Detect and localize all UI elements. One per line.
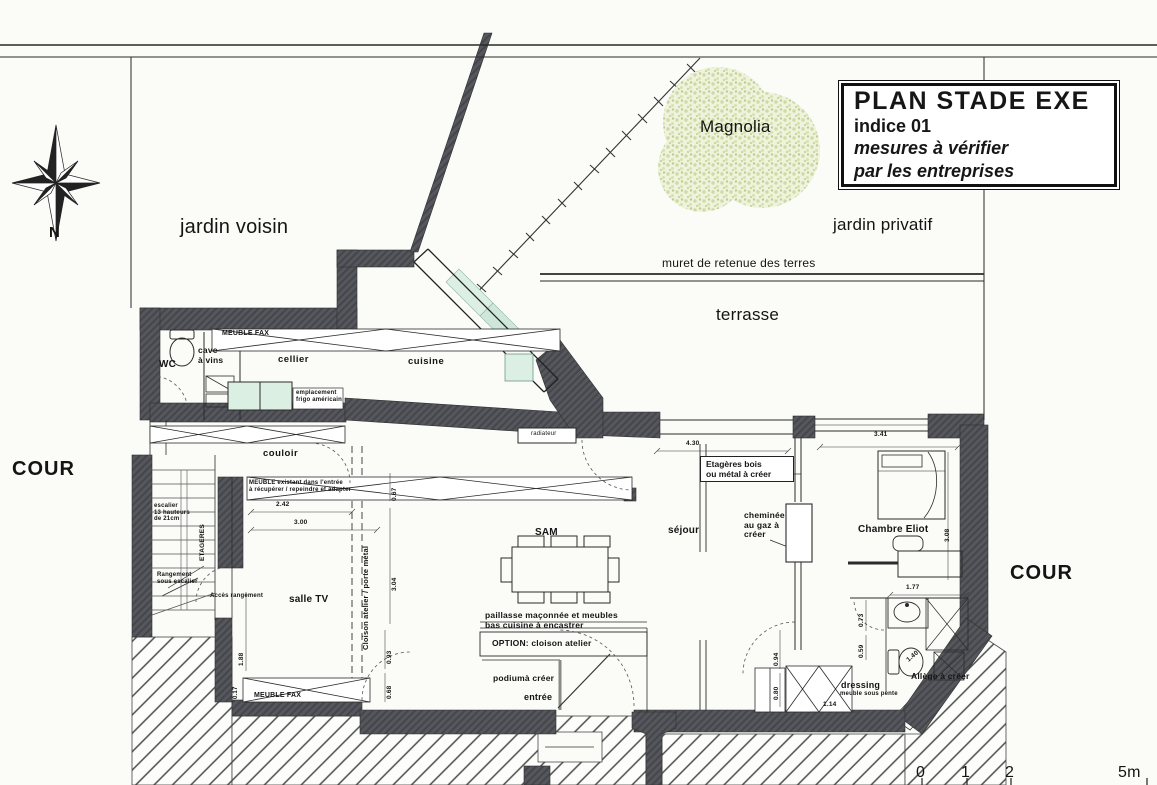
title-block: PLAN STADE EXE indice 01 mesures à vérif… [838, 80, 1120, 190]
label-terrasse: terrasse [716, 305, 779, 324]
label-option-cloison: OPTION: cloison atelier [492, 639, 592, 649]
label-meuble-fax-bottom: MEUBLE FAX [254, 692, 301, 700]
label-room-cave: cave à vins [198, 346, 223, 365]
dining-table [501, 536, 619, 603]
label-room-salle-tv: salle TV [289, 594, 328, 605]
dressing-units [755, 666, 852, 712]
label-room-entree: entrée [524, 692, 552, 702]
label-magnolia: Magnolia [700, 117, 771, 136]
label-north: N [49, 225, 60, 242]
dim-080: 0.80 [773, 687, 780, 700]
label-frigo: emplacement frigo américain [296, 390, 342, 404]
label-muret: muret de retenue des terres [662, 257, 815, 270]
label-room-couloir: couloir [263, 449, 298, 460]
dim-177: 1.77 [906, 584, 919, 591]
bed [878, 451, 945, 519]
magnolia-tree [658, 67, 820, 212]
label-room-sam: SAM [535, 527, 558, 538]
kitchen-island [505, 354, 533, 381]
dim-093: 0.93 [386, 651, 393, 664]
dim-300: 3.00 [294, 519, 307, 526]
label-rangement: Rangement sous escalier [157, 572, 198, 585]
label-meuble-existant: MEUBLE existant dans l'entrée à récupére… [249, 480, 351, 493]
kitchen-glazing [414, 249, 558, 392]
dim-017: 0.17 [233, 687, 240, 699]
scale-5m: 5m [1118, 764, 1141, 782]
fireplace [786, 504, 812, 562]
dim-094: 0.94 [773, 653, 780, 666]
label-etageres-bois: Etagères bois ou métal à créer [700, 456, 794, 482]
dim-114: 1.14 [823, 701, 836, 708]
scale-0: 0 [916, 764, 925, 782]
hall-cabinet-band [150, 426, 345, 443]
plan-title: PLAN STADE EXE [854, 87, 1114, 116]
label-cloison-porte: Cloison atelier / porte métal [362, 546, 370, 650]
scale-2: 2 [1005, 764, 1014, 782]
scale-1: 1 [961, 764, 970, 782]
label-jardin-privatif: jardin privatif [833, 215, 932, 234]
label-room-cuisine: cuisine [408, 357, 444, 368]
label-cour-east: COUR [1010, 562, 1073, 584]
label-room-dressing: dressing [841, 680, 880, 690]
label-meuble-fax-top: MEUBLE FAX [222, 330, 269, 338]
dim-068: 0.68 [386, 686, 393, 699]
label-etageres: ETAGERES [199, 524, 206, 561]
dim-067: 0.67 [391, 488, 398, 501]
plan-note-2: par les entreprises [854, 160, 1114, 183]
floor-plan: PLAN STADE EXE indice 01 mesures à vérif… [0, 0, 1157, 785]
dim-059: 0.59 [858, 645, 865, 658]
label-paillasse: paillasse maçonnée et meubles bas cuisin… [485, 611, 618, 630]
entry-step-landing [538, 732, 602, 762]
label-room-chambre: Chambre Eliot [858, 524, 928, 535]
dim-073: 0.73 [858, 614, 865, 627]
dim-430: 4.30 [686, 440, 699, 447]
label-room-wc: WC [159, 359, 176, 370]
property-line-sliver [410, 33, 492, 252]
label-escalier: escalier 13 hauteurs de 21cm [154, 503, 190, 523]
dim-242: 2.42 [276, 501, 289, 508]
label-room-sejour: séjour [668, 525, 699, 536]
plan-note-1: mesures à vérifier [854, 137, 1114, 160]
label-podium: podiumà créer [493, 674, 554, 684]
label-allege: Allège à créer [911, 672, 970, 682]
label-acces-rangement: Accès rangement [210, 593, 263, 600]
dim-188: 1.88 [238, 653, 245, 666]
dim-341: 3.41 [874, 431, 887, 438]
desk-and-chair [893, 536, 962, 577]
entry-door-leaf [558, 654, 610, 708]
dim-308: 3.08 [944, 529, 951, 542]
label-room-cellier: cellier [278, 355, 309, 366]
label-dressing-sub: meuble sous pente [840, 691, 898, 698]
plan-indice: indice 01 [854, 116, 1114, 137]
label-jardin-voisin: jardin voisin [180, 216, 288, 238]
label-cour-west: COUR [12, 458, 75, 480]
label-radiateur: radiateur [531, 431, 556, 438]
dim-304: 3.04 [391, 578, 398, 591]
label-cheminee: cheminée au gaz à créer [744, 511, 785, 540]
